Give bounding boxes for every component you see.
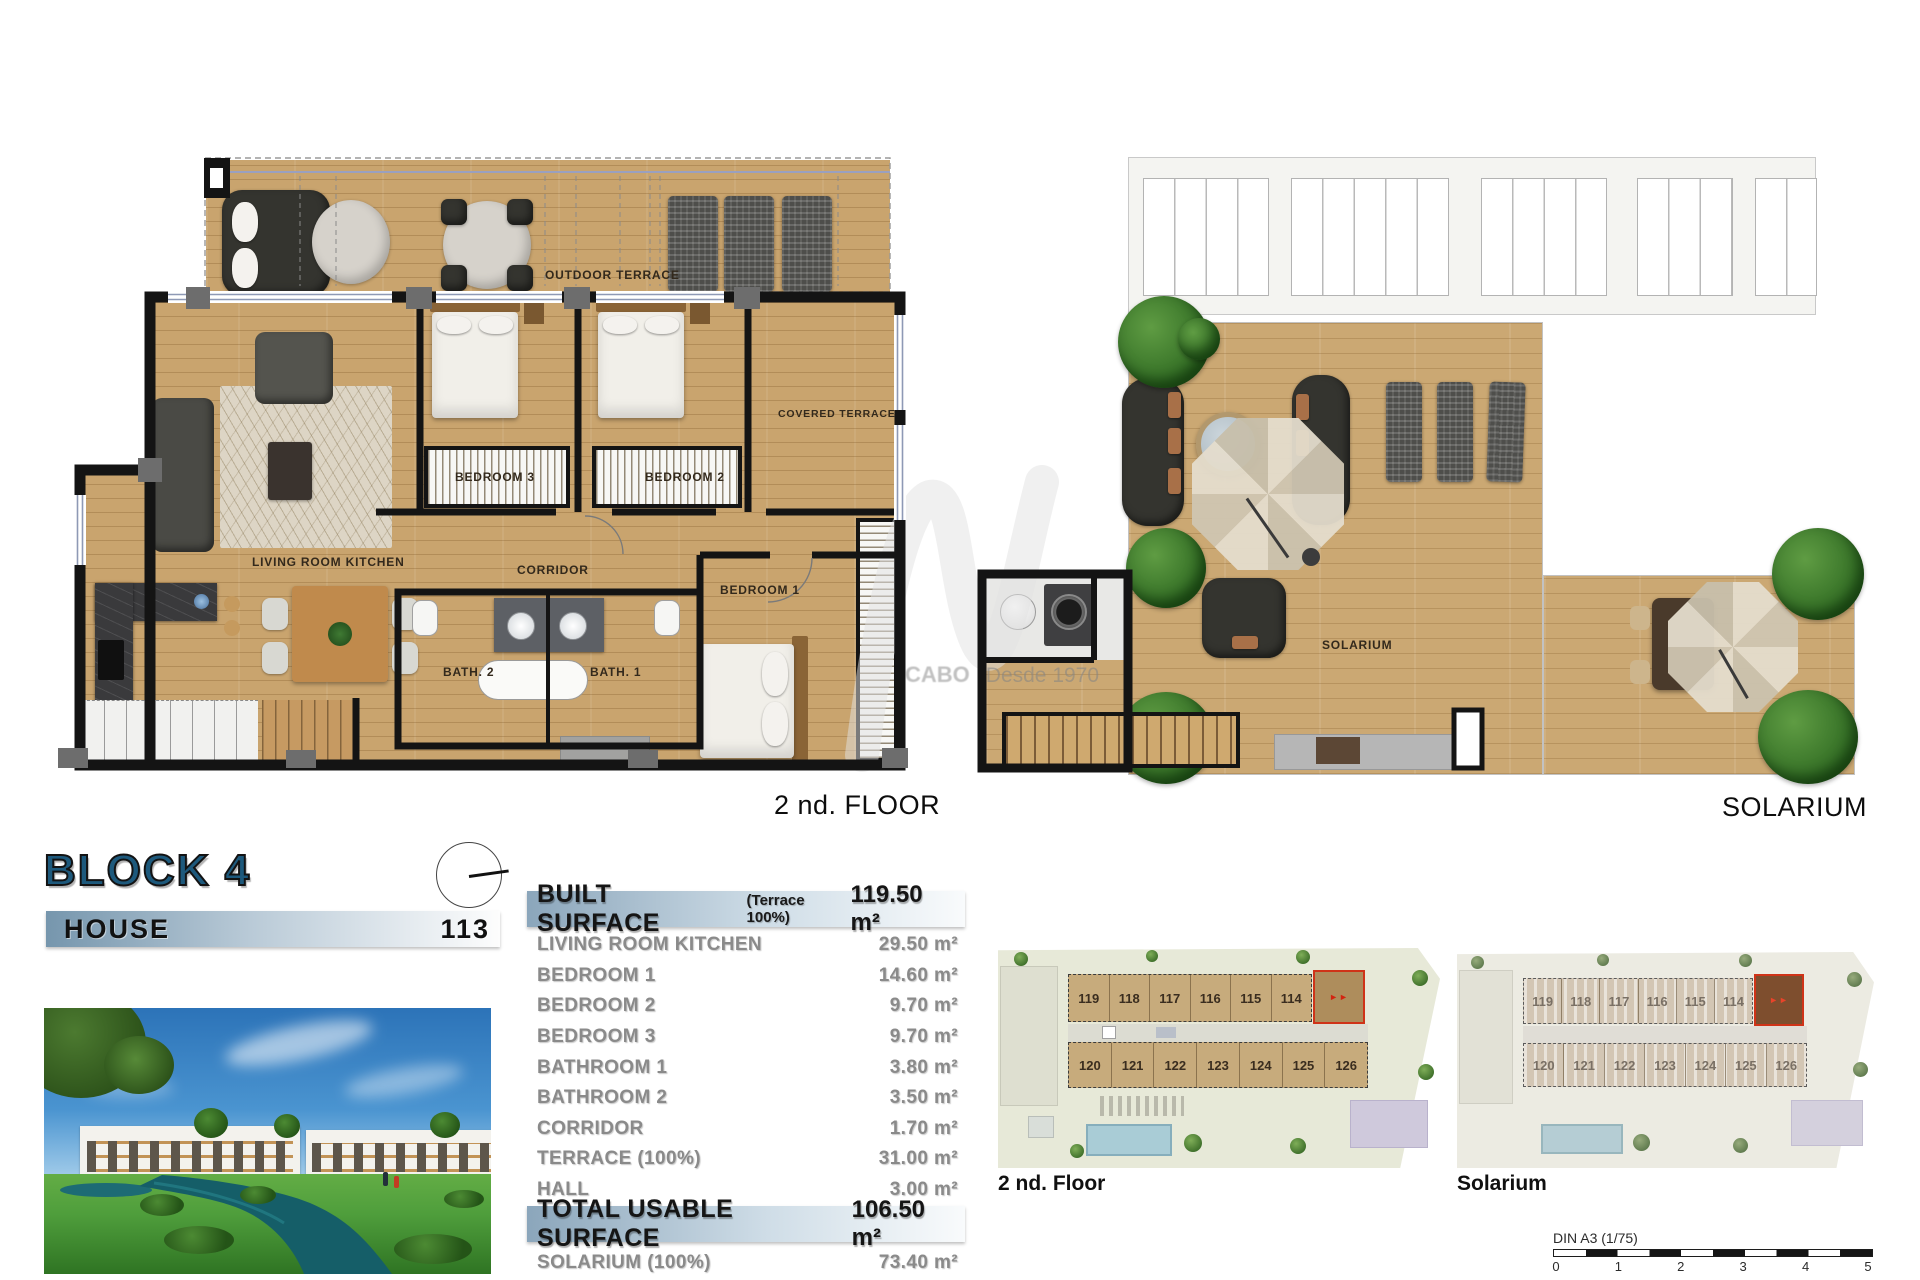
scale-tick: 3 xyxy=(1738,1259,1748,1274)
site-tree xyxy=(1739,954,1752,967)
caption-solarium: SOLARIUM xyxy=(1722,792,1867,823)
brochure-page: CABO Desde 1970 OUTDOOR TERRACE COVERED … xyxy=(0,0,1920,1280)
roof-slats xyxy=(1291,178,1449,296)
site-unit: 125 xyxy=(1283,1043,1326,1087)
surface-row: CORRIDOR 1.70 m² xyxy=(537,1114,958,1145)
site-unit: 118 xyxy=(1562,979,1600,1023)
site-tree xyxy=(1070,1144,1084,1158)
sofa-cushion xyxy=(1232,636,1258,649)
dining-chair xyxy=(262,642,288,674)
site-tree xyxy=(1412,970,1428,986)
entry-mat xyxy=(1274,734,1456,770)
solarium-surface-label: SOLARIUM (100%) xyxy=(537,1252,711,1274)
bathtub xyxy=(478,660,588,700)
roof-slats xyxy=(1481,178,1607,296)
label-corridor: CORRIDOR xyxy=(517,563,589,577)
site-unit: 116 xyxy=(1639,979,1677,1023)
surface-row-value: 31.00 m² xyxy=(879,1148,958,1170)
bed-pillow xyxy=(762,652,788,696)
site-unit: 118 xyxy=(1110,975,1151,1021)
caption-second-floor: 2 nd. FLOOR xyxy=(774,790,940,821)
site-unit: 116 xyxy=(1191,975,1232,1021)
label-covered-terrace: COVERED TERRACE xyxy=(778,408,896,420)
scale-label: DIN A3 (1/75) xyxy=(1553,1230,1638,1246)
surface-row: BEDROOM 2 9.70 m² xyxy=(537,991,958,1022)
solarium-surface-value: 73.40 m² xyxy=(879,1252,958,1274)
terrace-chair xyxy=(507,265,533,291)
site-tree xyxy=(1290,1138,1306,1154)
foreground-tree xyxy=(104,1036,174,1094)
roof-slats xyxy=(1755,178,1817,296)
surface-row-value: 9.70 m² xyxy=(890,995,958,1017)
lounger-rows xyxy=(1100,1096,1184,1116)
staircase-wood xyxy=(262,700,354,762)
site-tree xyxy=(1597,954,1609,966)
sofa-cushion xyxy=(1168,428,1181,454)
label-solarium-room: SOLARIUM xyxy=(1322,638,1392,652)
parasol xyxy=(1668,582,1798,712)
living-armchair xyxy=(255,332,333,404)
surface-row-value: 29.50 m² xyxy=(879,934,958,956)
bed-headboard xyxy=(596,298,686,312)
label-living: LIVING ROOM KITCHEN xyxy=(252,555,405,569)
parasol xyxy=(1192,418,1344,570)
siteplan-caption-second-floor: 2 nd. Floor xyxy=(998,1172,1105,1196)
scale-tick: 1 xyxy=(1613,1259,1623,1274)
coffee-table xyxy=(268,442,312,500)
building-row-bottom: 120121122123124125126 xyxy=(1068,1042,1368,1088)
lawn-bush xyxy=(164,1226,234,1254)
watermark-tagline: Desde 1970 xyxy=(986,664,1099,688)
surface-row-label: BATHROOM 1 xyxy=(537,1057,667,1079)
utility-sink xyxy=(1000,594,1036,630)
bath-sink xyxy=(559,612,587,640)
site-unit: 124 xyxy=(1686,1044,1726,1086)
site-pool xyxy=(1541,1124,1623,1154)
label-outdoor-terrace: OUTDOOR TERRACE xyxy=(545,268,680,282)
surface-row: BEDROOM 3 9.70 m² xyxy=(537,1022,958,1053)
block-title: BLOCK 4 xyxy=(44,846,251,896)
site-unit: 126 xyxy=(1325,1043,1367,1087)
surface-row-value: 3.50 m² xyxy=(890,1087,958,1109)
property-photo xyxy=(44,1008,491,1274)
highlighted-unit-113: ►► xyxy=(1754,974,1804,1026)
sofa-pillow xyxy=(232,202,258,242)
site-tree xyxy=(1733,1138,1748,1153)
site-tree xyxy=(1014,952,1028,966)
golfer xyxy=(383,1172,388,1186)
scale-tick: 5 xyxy=(1863,1259,1873,1274)
terrace-chair xyxy=(507,199,533,225)
surface-row: BATHROOM 2 3.50 m² xyxy=(537,1083,958,1114)
total-surface-bar: TOTAL USABLE SURFACE 106.50 m² xyxy=(527,1206,965,1242)
kitchen-stool xyxy=(224,620,240,636)
highlight-arrows: ►► xyxy=(1769,995,1789,1005)
site-unit: 114 xyxy=(1272,975,1312,1021)
total-surface-label: TOTAL USABLE SURFACE xyxy=(537,1195,852,1253)
sun-lounger xyxy=(782,196,832,292)
scale-bar xyxy=(1553,1249,1873,1257)
label-bath2: BATH. 2 xyxy=(443,665,494,679)
site-tree xyxy=(1633,1134,1650,1151)
plant-bush xyxy=(1126,528,1206,608)
bed-pillow xyxy=(603,316,637,334)
surface-row-value: 9.70 m² xyxy=(890,1026,958,1048)
site-plaza xyxy=(1350,1100,1428,1148)
toilet xyxy=(654,600,680,636)
surface-row-label: LIVING ROOM KITCHEN xyxy=(537,934,762,956)
highlight-arrows: ►► xyxy=(1329,992,1349,1002)
scale-tick: 0 xyxy=(1551,1259,1561,1274)
dining-stool xyxy=(1630,606,1650,630)
sofa-pillow xyxy=(232,248,258,288)
site-unit: 114 xyxy=(1715,979,1752,1023)
bed-pillow xyxy=(645,316,679,334)
house-bar: HOUSE 113 xyxy=(46,911,500,947)
label-bath1: BATH. 1 xyxy=(590,665,641,679)
toilet xyxy=(412,600,438,636)
site-unit: 123 xyxy=(1645,1044,1685,1086)
surface-rows: LIVING ROOM KITCHEN 29.50 m² BEDROOM 1 1… xyxy=(537,930,958,1205)
cooktop xyxy=(98,640,124,680)
path-kiosk xyxy=(1156,1027,1176,1038)
site-structures xyxy=(1459,970,1513,1104)
lawn-bush xyxy=(394,1234,472,1264)
site-unit: 121 xyxy=(1112,1043,1155,1087)
site-unit: 120 xyxy=(1524,1044,1564,1086)
siteplan-solarium: 119118117116115114 ►► 120121122123124125… xyxy=(1457,952,1874,1168)
compass-needle xyxy=(469,869,509,878)
site-unit: 123 xyxy=(1197,1043,1240,1087)
washing-machine-door xyxy=(1051,594,1087,630)
surface-row: LIVING ROOM KITCHEN 29.50 m² xyxy=(537,930,958,961)
siteplan-caption-solarium: Solarium xyxy=(1457,1172,1547,1196)
roof-slats xyxy=(1637,178,1733,296)
site-unit: 117 xyxy=(1600,979,1638,1023)
site-unit: 120 xyxy=(1069,1043,1112,1087)
plant-bush xyxy=(1758,690,1858,784)
house-label: HOUSE xyxy=(64,914,170,945)
surface-row: BATHROOM 1 3.80 m² xyxy=(537,1052,958,1083)
solarium-roof xyxy=(1128,157,1816,315)
sofa-cushion xyxy=(1168,392,1181,418)
surface-row-label: BEDROOM 2 xyxy=(537,995,656,1017)
nightstand xyxy=(690,300,710,324)
label-bedroom3: BEDROOM 3 xyxy=(455,470,535,484)
site-tree xyxy=(1296,950,1310,964)
building-row-bottom: 120121122123124125126 xyxy=(1523,1043,1807,1087)
site-unit: 121 xyxy=(1564,1044,1604,1086)
site-unit: 125 xyxy=(1726,1044,1766,1086)
site-unit: 124 xyxy=(1240,1043,1283,1087)
surface-row-value: 1.70 m² xyxy=(890,1118,958,1140)
site-unit: 115 xyxy=(1677,979,1715,1023)
bed-pillow xyxy=(762,702,788,746)
sun-lounger xyxy=(1486,381,1525,482)
sun-lounger xyxy=(724,196,774,292)
kitchen-stool xyxy=(224,596,240,612)
built-surface-note: (Terrace 100%) xyxy=(747,892,851,926)
dining-chair xyxy=(262,598,288,630)
bath-sink xyxy=(507,612,535,640)
sofa-cushion xyxy=(1296,394,1309,420)
hall-mat xyxy=(560,736,650,764)
sun-lounger xyxy=(1386,382,1422,482)
building-row-top: 119118117116115114 xyxy=(1523,978,1753,1024)
bed-pillow xyxy=(479,316,513,334)
solarium-surface-row: SOLARIUM (100%) 73.40 m² xyxy=(537,1252,958,1274)
dining-chair xyxy=(392,642,418,674)
site-unit: 122 xyxy=(1605,1044,1645,1086)
kitchen-sink xyxy=(194,594,209,609)
terrace-oval-table xyxy=(312,200,390,284)
compass-icon xyxy=(436,842,502,908)
house-number: 113 xyxy=(440,914,490,945)
bed-headboard xyxy=(792,636,808,764)
site-unit: 119 xyxy=(1524,979,1562,1023)
surface-row-value: 14.60 m² xyxy=(879,965,958,987)
site-tree xyxy=(1146,950,1158,962)
roof-slats xyxy=(1143,178,1269,296)
site-unit: 117 xyxy=(1150,975,1191,1021)
solarium-stairs xyxy=(1002,712,1240,768)
site-unit: 122 xyxy=(1154,1043,1197,1087)
site-unit: 119 xyxy=(1069,975,1110,1021)
lawn-bush xyxy=(444,1190,484,1208)
surface-row-label: TERRACE (100%) xyxy=(537,1148,701,1170)
lawn-bush xyxy=(240,1186,276,1204)
door-mat xyxy=(1316,737,1360,764)
watermark-brand: CABO xyxy=(905,662,970,688)
sun-lounger xyxy=(1437,382,1473,482)
terrace-chair xyxy=(441,265,467,291)
site-unit: 126 xyxy=(1767,1044,1806,1086)
scale-tick: 4 xyxy=(1801,1259,1811,1274)
nightstand xyxy=(524,300,544,324)
built-surface-bar: BUILT SURFACE (Terrace 100%) 119.50 m² xyxy=(527,891,965,927)
watermark: CABO Desde 1970 xyxy=(905,662,1099,688)
highlighted-unit-113: ►► xyxy=(1313,970,1365,1024)
site-tree xyxy=(1418,1064,1434,1080)
bed-headboard xyxy=(430,298,520,312)
terrace-chair xyxy=(441,199,467,225)
scale-tick: 2 xyxy=(1676,1259,1686,1274)
site-tree xyxy=(1471,956,1484,969)
surface-row-label: BEDROOM 3 xyxy=(537,1026,656,1048)
site-pool xyxy=(1086,1124,1172,1156)
scale-ticks: 012345 xyxy=(1553,1259,1875,1274)
site-tree xyxy=(1847,972,1862,987)
path-kiosk xyxy=(1102,1026,1116,1039)
dining-stool xyxy=(1630,660,1650,684)
site-plaza xyxy=(1791,1100,1863,1146)
golfer xyxy=(394,1176,399,1188)
label-bedroom1: BEDROOM 1 xyxy=(720,583,800,597)
surface-row-label: BATHROOM 2 xyxy=(537,1087,667,1109)
built-surface-value: 119.50 m² xyxy=(851,881,957,937)
building-row-top: 119118117116115114 xyxy=(1068,974,1312,1022)
total-surface-value: 106.50 m² xyxy=(852,1196,957,1252)
plant-bush xyxy=(1178,318,1220,360)
parasol-base xyxy=(1302,548,1320,566)
table-plant xyxy=(328,622,352,646)
site-tree xyxy=(1184,1134,1202,1152)
site-path xyxy=(1523,1026,1807,1043)
bed-pillow xyxy=(437,316,471,334)
site-tree xyxy=(1853,1062,1868,1077)
sofa-cushion xyxy=(1168,468,1181,494)
site-structures xyxy=(1000,966,1058,1106)
siteplan-second-floor: 119118117116115114 ►► 120121122123124125… xyxy=(998,948,1440,1168)
site-pool-small xyxy=(1028,1116,1054,1138)
lawn-bush xyxy=(140,1194,184,1216)
bedroom1-wardrobe xyxy=(856,518,898,762)
surface-row: TERRACE (100%) 31.00 m² xyxy=(537,1144,958,1175)
surface-row-label: CORRIDOR xyxy=(537,1118,644,1140)
surface-row-label: BEDROOM 1 xyxy=(537,965,656,987)
label-bedroom2: BEDROOM 2 xyxy=(645,470,725,484)
surface-row-value: 3.80 m² xyxy=(890,1057,958,1079)
living-sofa xyxy=(152,398,214,552)
surface-row: BEDROOM 1 14.60 m² xyxy=(537,961,958,992)
site-unit: 115 xyxy=(1231,975,1272,1021)
staircase xyxy=(82,700,258,762)
plant-bush xyxy=(1772,528,1864,620)
